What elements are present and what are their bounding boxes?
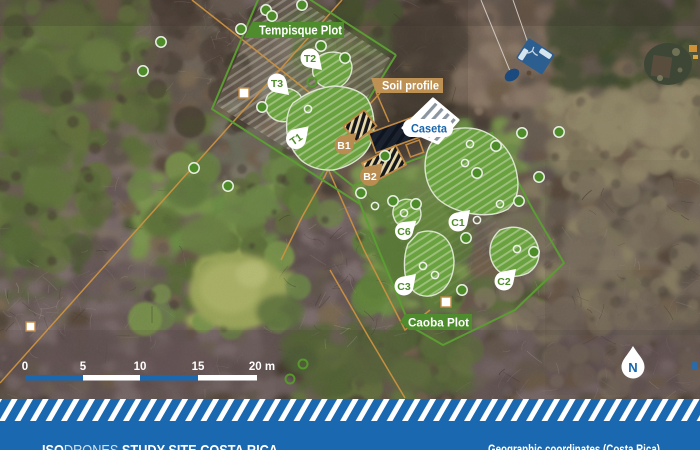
svg-text:C3: C3 bbox=[397, 281, 411, 293]
svg-text:Soil profile: Soil profile bbox=[382, 79, 439, 93]
svg-text:C2: C2 bbox=[497, 276, 511, 288]
svg-text:5: 5 bbox=[80, 361, 87, 373]
svg-text:C1: C1 bbox=[451, 217, 465, 229]
svg-text:T2: T2 bbox=[304, 53, 316, 65]
svg-text:Caseta: Caseta bbox=[411, 122, 447, 136]
svg-text:N: N bbox=[628, 360, 637, 375]
svg-text:C6: C6 bbox=[397, 226, 411, 238]
svg-text:20 m: 20 m bbox=[249, 361, 275, 373]
svg-text:Caoba Plot: Caoba Plot bbox=[408, 316, 469, 330]
svg-text:10: 10 bbox=[134, 361, 147, 373]
svg-text:15: 15 bbox=[192, 361, 205, 373]
svg-text:B2: B2 bbox=[363, 171, 377, 183]
svg-text:B1: B1 bbox=[337, 140, 351, 152]
svg-text:0: 0 bbox=[22, 361, 28, 373]
svg-text:ISODRONES STUDY SITE COSTA RIC: ISODRONES STUDY SITE COSTA RICA bbox=[42, 442, 278, 450]
svg-text:T3: T3 bbox=[271, 78, 283, 90]
svg-text:Tempisque Plot: Tempisque Plot bbox=[259, 24, 343, 38]
svg-text:Geographic coordinates (Costa: Geographic coordinates (Costa Rica) bbox=[488, 443, 660, 450]
